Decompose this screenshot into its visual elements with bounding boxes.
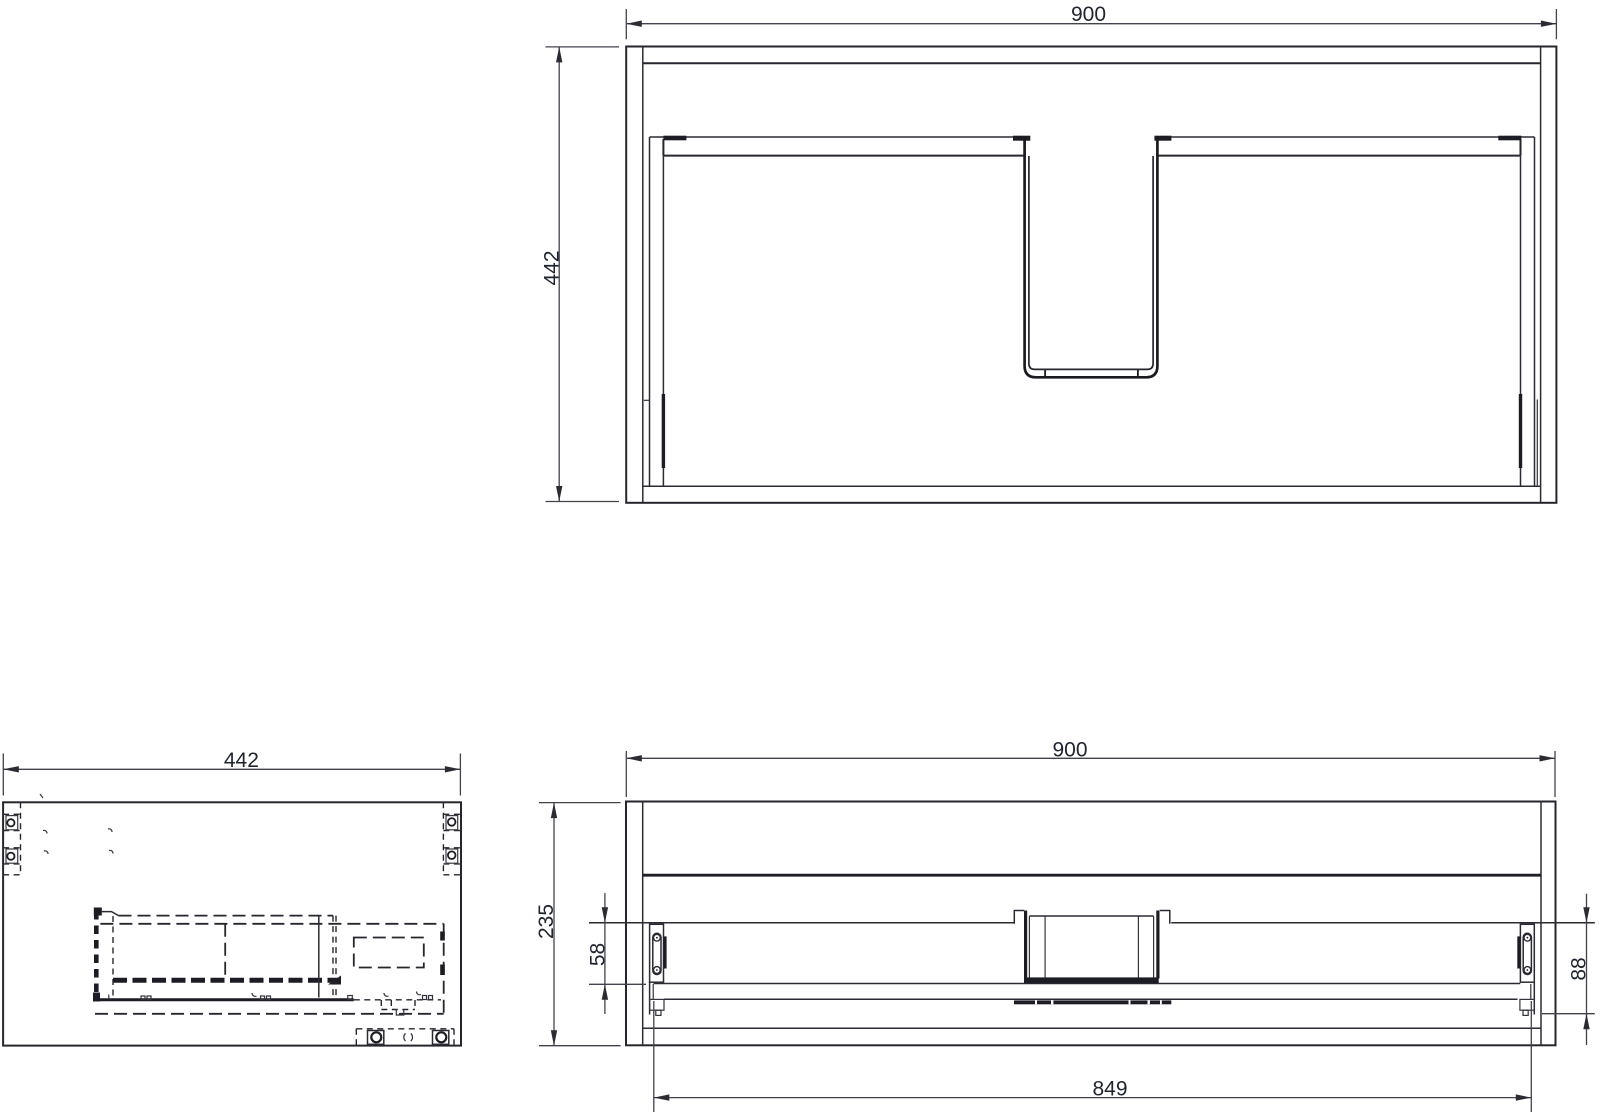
svg-text:442: 442 [541,250,564,285]
svg-text:900: 900 [1071,3,1106,26]
svg-text:88: 88 [1568,957,1591,980]
svg-text:58: 58 [586,943,609,966]
svg-text:849: 849 [1092,1077,1127,1100]
svg-text:900: 900 [1052,738,1087,761]
svg-text:235: 235 [535,904,558,939]
svg-text:442: 442 [224,749,259,772]
